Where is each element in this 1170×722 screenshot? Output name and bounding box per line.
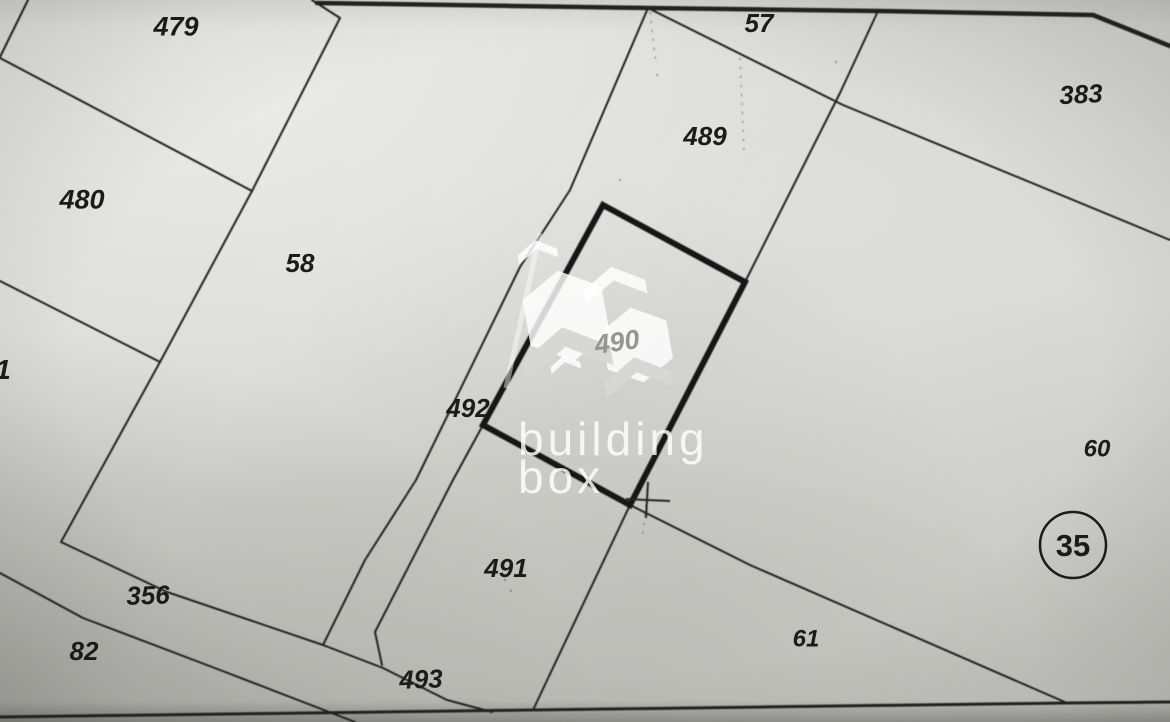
watermark-parcel-ref: 490 bbox=[592, 324, 642, 360]
scan-speck bbox=[510, 590, 512, 592]
boundary-south-boundary bbox=[0, 702, 1170, 717]
building-box-logo-icon bbox=[506, 233, 674, 398]
scan-speck bbox=[835, 61, 837, 63]
boundary-top-boundary-bold bbox=[317, 3, 1170, 46]
boundary-boundary-491-61 bbox=[533, 505, 630, 710]
parcel-label-383: 383 bbox=[1059, 78, 1104, 110]
parcel-label-356: 356 bbox=[126, 579, 171, 611]
parcel-label-82: 82 bbox=[70, 636, 99, 666]
parcel-label-492: 492 bbox=[445, 393, 490, 423]
parcel-boundaries bbox=[0, 0, 1170, 722]
watermark-brand-line2: box bbox=[518, 451, 604, 503]
dots-parcel-489 bbox=[740, 58, 744, 152]
parcel-label-493: 493 bbox=[398, 663, 444, 695]
dots-near-top-junction bbox=[650, 12, 656, 64]
parcel-label-60: 60 bbox=[1084, 435, 1111, 462]
circled-parcel-label-35: 35 bbox=[1056, 528, 1090, 563]
parcel-label-61: 61 bbox=[793, 625, 820, 652]
parcel-label-58: 58 bbox=[286, 248, 315, 278]
boundary-boundary-479-480 bbox=[0, 58, 252, 191]
boundary-northwest-corner-cut bbox=[0, 0, 28, 57]
parcel-label-480: 480 bbox=[58, 184, 104, 214]
boundary-boundary-60-61 bbox=[630, 505, 1067, 703]
scan-speck bbox=[656, 74, 658, 76]
boundary-boundary-489-383 bbox=[745, 11, 878, 282]
scanned-plat-map-photo: 490 building box 47948058574893834926049… bbox=[0, 0, 1170, 722]
parcel-label-489: 489 bbox=[682, 121, 727, 151]
scan-speck bbox=[619, 179, 621, 181]
cadastral-map: 490 building box 47948058574893834926049… bbox=[0, 0, 1170, 722]
boundary-boundary-492-491 bbox=[375, 425, 483, 665]
watermark: 490 building box bbox=[506, 233, 709, 503]
parcel-label-491: 491 bbox=[483, 553, 527, 583]
parcel-label-479: 479 bbox=[152, 11, 198, 41]
survey-cross-icon bbox=[646, 482, 648, 518]
parcel-label-1: 1 bbox=[0, 354, 11, 385]
boundary-boundary-480-sliver bbox=[0, 281, 160, 362]
parcel-label-57: 57 bbox=[745, 8, 775, 38]
